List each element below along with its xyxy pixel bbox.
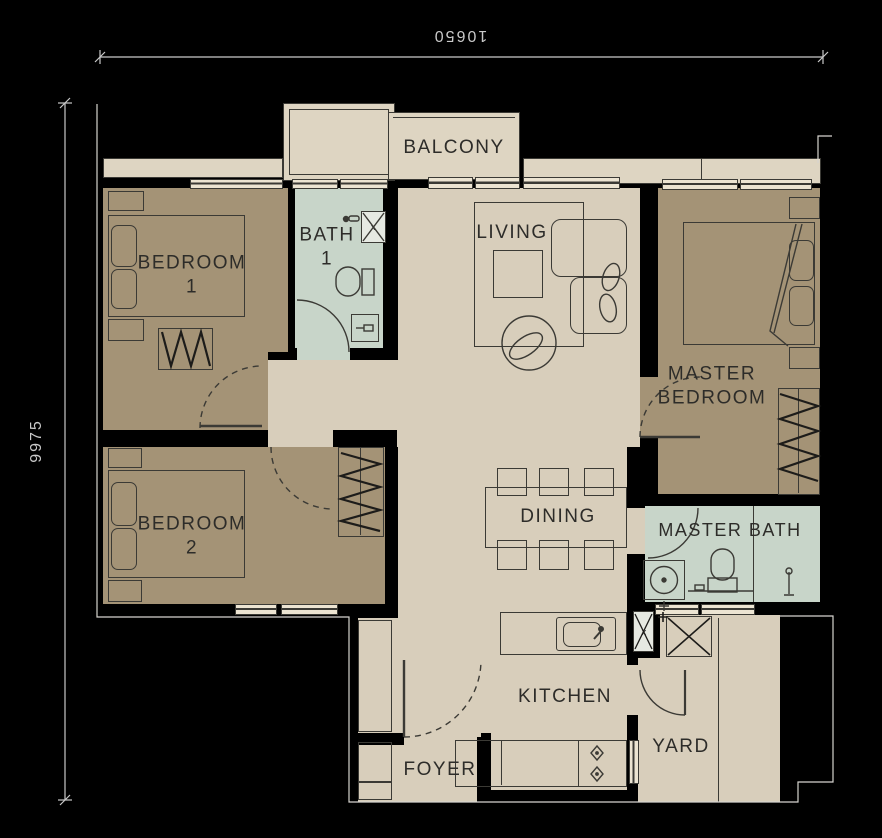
yard-door-opening [627,665,640,715]
master-bedroom-label-line1: MASTER [658,362,767,386]
ac-ledge [283,103,395,181]
balcony-label: BALCONY [403,136,504,160]
master-bedroom-label: MASTER BEDROOM [658,362,767,410]
balcony-sliding-door-a [428,177,473,189]
nightstand [108,191,144,211]
dimension-width-label: 10650 [395,26,525,44]
bedroom2-label: BEDROOM 2 [138,512,247,560]
nightstand [789,197,820,219]
wardrobe [778,388,820,495]
dining-label: DINING [520,505,596,529]
bedroom1-label: BEDROOM 1 [138,251,247,299]
wardrobe [338,447,384,537]
dining-chair [539,540,569,570]
coffee-table [493,250,543,298]
pillow [111,482,137,526]
stove [578,740,627,787]
nightstand [108,580,142,602]
yard-label: YARD [652,735,709,759]
nightstand [108,319,144,341]
dining-chair [497,468,527,496]
window-master-bath-a [655,604,699,615]
window-bath1-b [340,179,388,189]
dining-chair [584,468,614,496]
nightstand [789,347,820,369]
floor-plan: 10650 9975 x [0,0,882,838]
cabinet-divider [501,741,502,785]
bath1-label-name: BATH [299,223,354,247]
kitchen-label: KITCHEN [518,685,612,709]
window-living [523,177,620,189]
pillow [111,269,137,309]
ledge-bedroom1-top [103,158,283,178]
wardrobe-divider [798,389,799,493]
living-label: LIVING [476,221,547,245]
master-bath-label: MASTER BATH [658,519,801,542]
balcony-sliding-door-b [475,177,520,189]
shaft-x-icon: x [642,627,647,637]
window-bath1-a [292,179,338,189]
window-master-a [662,179,738,190]
washing-machine [643,560,685,600]
bath1-label: BATH 1 [299,223,354,271]
pillow [789,240,814,281]
wardrobe [158,328,213,370]
dining-chair [584,540,614,570]
foyer-label: FOYER [404,758,477,782]
shoe-cabinet [358,782,392,800]
sofa [551,219,627,277]
window-master-bath-b [701,604,755,615]
pillow [111,225,137,267]
wardrobe-divider [360,448,361,535]
kitchen-sink-basin [563,622,601,647]
yard-partition [718,618,719,802]
dimension-height-label: 9975 [28,406,46,476]
window-bedroom1 [190,179,283,189]
dining-chair [539,468,569,496]
drain-x-icon: x [371,222,376,232]
window-bedroom2-a [235,604,277,615]
bath1-label-number: 1 [299,247,354,271]
bedroom2-label-number: 2 [138,536,247,560]
pillow [789,286,814,326]
sofa-chaise [570,277,627,334]
bedroom2-label-name: BEDROOM [138,512,247,536]
bedroom1-label-number: 1 [138,275,247,299]
ac-ledge-railing [289,109,389,175]
hall-cabinet [358,620,392,732]
window-yard [629,740,639,784]
shoe-cabinet [358,742,392,782]
dining-chair [497,540,527,570]
sink [351,314,379,342]
wall-wardrobe2-top [333,430,397,447]
master-bath-door-opening [627,508,645,554]
nightstand [108,448,142,468]
bedroom1-label-name: BEDROOM [138,251,247,275]
window-master-b [740,179,812,190]
pillow [111,528,137,570]
window-bedroom2-b [281,604,338,615]
master-door-opening [640,377,658,437]
master-bedroom-label-line2: BEDROOM [658,386,767,410]
ac-compressor-box [666,616,712,657]
